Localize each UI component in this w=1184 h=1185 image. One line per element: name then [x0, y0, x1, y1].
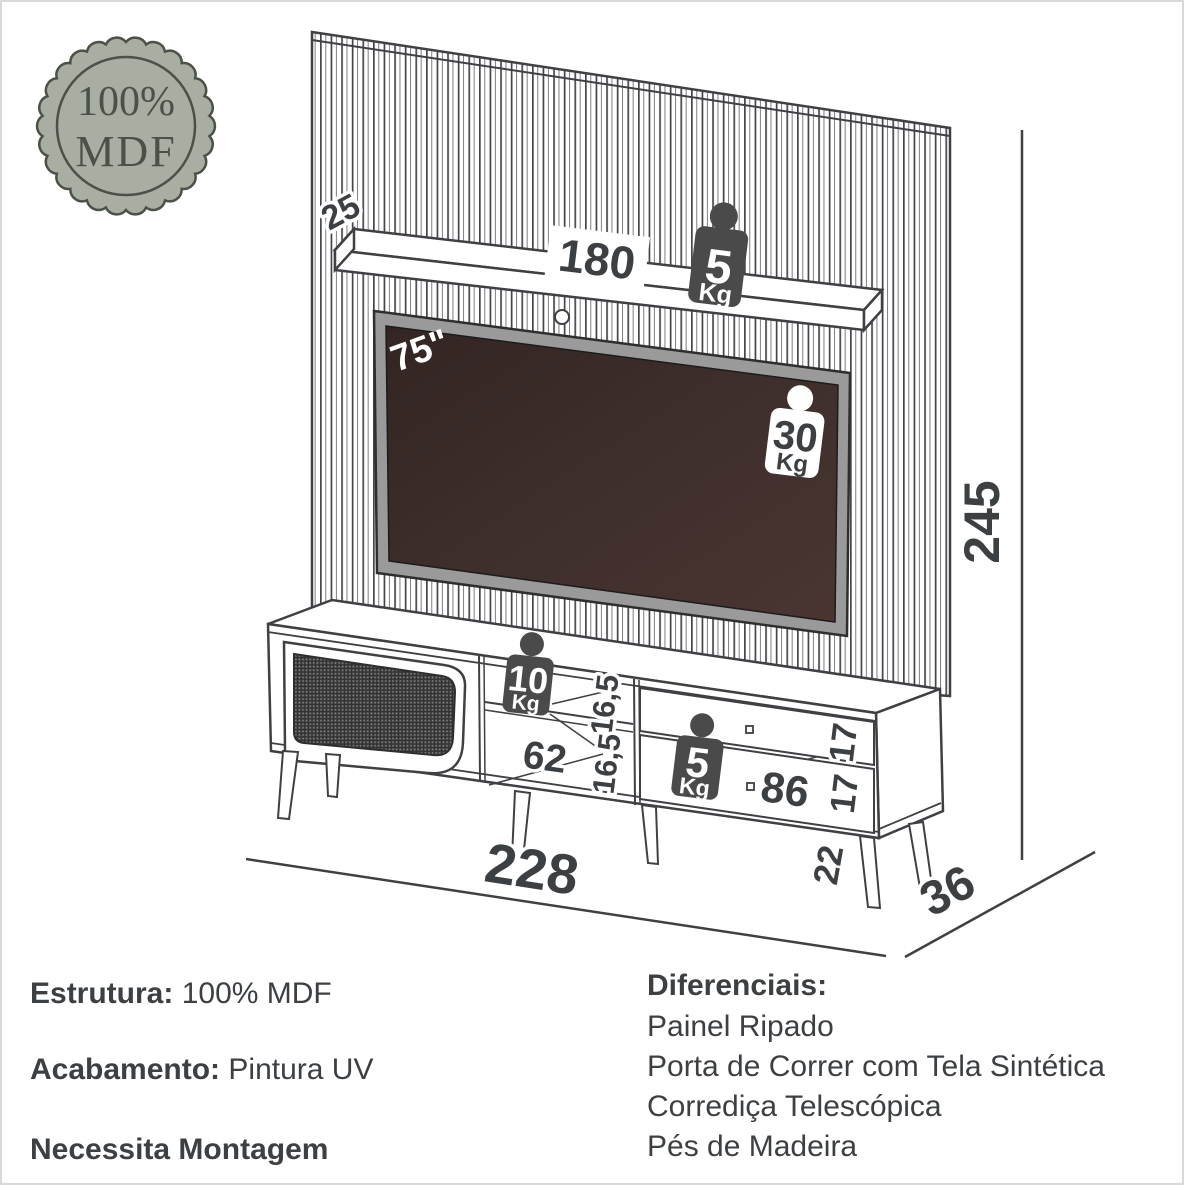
spec-montagem-label: Necessita Montagem	[30, 1133, 328, 1166]
seal-scalloped-border	[37, 38, 215, 215]
divider-left-inner	[484, 656, 485, 783]
divider-left	[479, 655, 480, 782]
spec-acabamento-value: Pintura UV	[228, 1053, 373, 1086]
niche-height-top-label: 16,5	[584, 673, 626, 737]
dimension-total-depth: 36	[905, 852, 1095, 957]
leg	[860, 836, 880, 908]
drawer-width-label: 86	[758, 763, 812, 817]
diferencial-item: Pés de Madeira	[647, 1127, 1105, 1167]
diferencial-item: Corrediça Telescópica	[647, 1087, 1105, 1127]
leg-height-label: 22	[806, 842, 851, 887]
tv-weight-unit: Kg	[775, 448, 810, 479]
drawer-height-top-label: 17	[822, 721, 865, 764]
spec-diferenciais-list: Painel Ripado Porta de Correr com Tela S…	[647, 1007, 1105, 1167]
drawer-knob-top	[746, 726, 753, 733]
mdf-seal: 100% MDF	[37, 38, 215, 215]
spec-montagem: Necessita Montagem	[30, 1131, 328, 1169]
divider-right	[634, 679, 635, 805]
shelf-weight-unit: Kg	[697, 278, 733, 310]
drawer-weight-unit: Kg	[678, 772, 712, 802]
shelf-width-label: 180	[556, 229, 639, 290]
spec-diferenciais-title: Diferenciais:	[647, 967, 827, 1005]
spec-acabamento: Acabamento: Pintura UV	[30, 1051, 373, 1089]
dimension-total-width: 228	[246, 831, 886, 956]
product-spec-sheet: 245 25 180 5 Kg 75"	[0, 0, 1184, 1185]
niche-weight-unit: Kg	[511, 690, 541, 716]
spec-estrutura-value: 100% MDF	[182, 977, 332, 1010]
spec-estrutura-label: Estrutura:	[30, 977, 173, 1010]
leg	[642, 805, 658, 864]
spec-acabamento-label: Acabamento:	[30, 1053, 220, 1086]
niche-height-bottom-label: 16,5	[586, 732, 628, 796]
cable-hole-icon	[555, 310, 569, 324]
drawer-knob-bottom	[747, 783, 754, 790]
total-height-label: 245	[954, 480, 1010, 563]
diferencial-item: Porta de Correr com Tela Sintética	[647, 1047, 1105, 1087]
seal-line1: 100%	[77, 79, 175, 125]
spec-estrutura: Estrutura: 100% MDF	[30, 975, 332, 1013]
drawer-height-bottom-label: 17	[823, 772, 866, 815]
dimension-total-height: 245	[954, 130, 1022, 860]
leg	[326, 754, 340, 797]
niche-width-label: 62	[520, 733, 569, 782]
leg	[278, 751, 298, 819]
diferencial-item: Painel Ripado	[647, 1007, 1105, 1047]
seal-line2: MDF	[75, 127, 176, 176]
total-width-label: 228	[481, 831, 583, 907]
